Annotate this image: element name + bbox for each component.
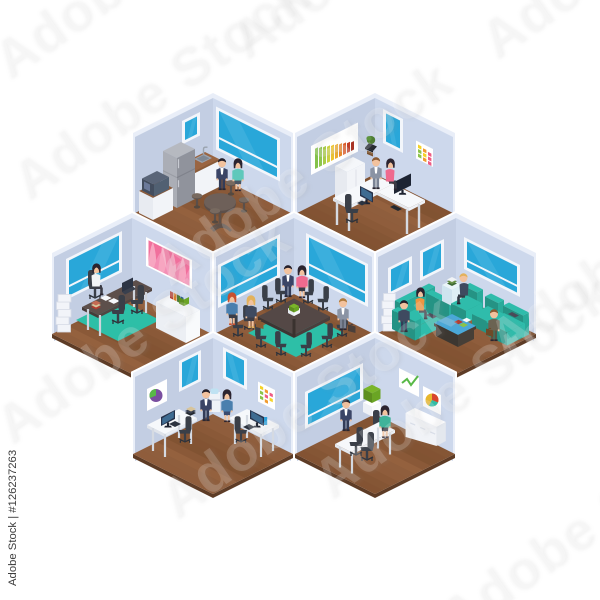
svg-text:Adobe Stock | #126237263: Adobe Stock | #126237263 (7, 450, 19, 586)
